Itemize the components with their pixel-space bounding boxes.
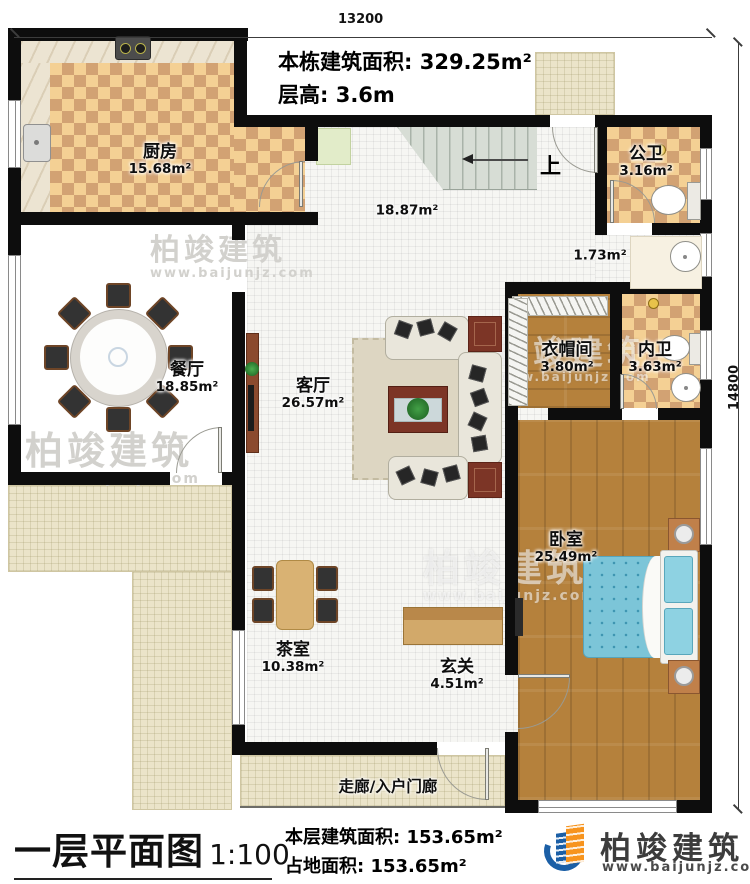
title-underline [14, 878, 272, 884]
wall [234, 115, 550, 127]
kitchen-sink [23, 124, 51, 162]
kitchen-floor [50, 63, 234, 212]
ceiling-lamp [648, 298, 659, 309]
burner [120, 43, 131, 54]
tea-chair [252, 598, 274, 623]
wall [595, 223, 607, 235]
bath-sink [671, 373, 701, 402]
wall [222, 472, 245, 485]
bed-pillow [664, 556, 693, 603]
top-dimension-line [14, 37, 712, 38]
stairs-up-label: 上 [540, 150, 561, 180]
entry-door-leaf [485, 748, 489, 800]
tea-room-slider [232, 630, 245, 725]
wall [232, 485, 245, 630]
shoe-cabinet [403, 607, 503, 645]
tea-chair [252, 566, 274, 591]
inner-bath-label: 内卫3.63m² [628, 341, 681, 375]
public-bath-door-leaf [610, 180, 614, 223]
right-dimension-line [738, 42, 739, 810]
toilet-tank [687, 182, 701, 220]
dining-chair [44, 345, 69, 370]
back-porch-floor [535, 52, 615, 115]
logo-building-orange [566, 824, 584, 865]
wall [505, 420, 518, 675]
wall [8, 472, 170, 485]
foyer-label: 玄关4.51m² [430, 658, 483, 692]
kitchen-window [8, 100, 21, 168]
land-area-text: 占地面积: 153.65m² [285, 852, 467, 878]
stair-direction-line [470, 159, 528, 161]
plan-title: 一层平面图 [14, 830, 204, 873]
plan-scale: 1:100 [209, 838, 290, 871]
kitchen-label: 厨房15.68m² [129, 143, 192, 177]
bed-pillow [664, 608, 693, 655]
toilet-bowl [651, 185, 686, 215]
nightstand [668, 660, 700, 694]
tea-table [276, 560, 314, 630]
plant [245, 362, 259, 376]
porch-edge-line [240, 806, 508, 808]
inner-bath-door-leaf [620, 374, 624, 409]
plan-title-block: 一层平面图 1:100 [14, 821, 290, 884]
tea-room-label: 茶室10.38m² [262, 641, 325, 675]
dining-window [8, 255, 21, 425]
stair-arrow-head [462, 154, 473, 164]
back-door-leaf [594, 127, 598, 173]
tea-chair [316, 598, 338, 623]
corridor-label: 走廊/入户门廊 [339, 778, 438, 795]
terrace-upper [8, 485, 232, 572]
logo-building-blue [556, 832, 566, 863]
floor-plan-sheet: 上 柏竣建筑 www.baijunjz.com 柏竣建筑 www.baijunj… [0, 0, 750, 884]
cloakroom-label: 衣帽间3.80m² [540, 341, 593, 375]
bedroom-door-leaf [518, 674, 570, 678]
stove [115, 36, 151, 60]
terrace-lower [132, 571, 232, 810]
tea-chair [316, 566, 338, 591]
tv [248, 385, 254, 431]
wash-area-label: 1.73m² [573, 248, 626, 263]
living-label: 客厅26.57m² [282, 377, 345, 411]
bedroom-tv [515, 598, 523, 636]
brand-website: www.baijunjz.com [602, 860, 750, 875]
public-bath-label: 公卫3.16m² [619, 145, 672, 179]
floor-height-text: 层高: 3.6m [278, 79, 395, 109]
plant [407, 398, 429, 420]
dining-door-leaf [218, 427, 222, 473]
inner-bath-window [700, 330, 712, 380]
dining-chair [106, 283, 131, 308]
lazy-susan [108, 347, 128, 367]
right-dimension-label: 14800 [727, 365, 742, 410]
brand-logo-icon [544, 821, 592, 877]
faucet [34, 140, 39, 145]
wall [232, 292, 245, 485]
side-table [468, 316, 502, 352]
dining-chair [106, 407, 131, 432]
wall [305, 127, 318, 161]
top-dimension-label: 13200 [338, 12, 383, 27]
wall [232, 742, 437, 755]
dining-door-arc [176, 427, 222, 473]
building-area-text: 本栋建筑面积: 329.25m² [278, 46, 532, 76]
wall [234, 28, 247, 127]
bedroom-label: 卧室25.49m² [535, 531, 598, 565]
bedroom-bottom-window [538, 800, 677, 813]
footer: 一层平面图 1:100 本层建筑面积: 153.65m² 占地面积: 153.6… [0, 815, 750, 884]
burner [135, 43, 146, 54]
nightstand [668, 518, 700, 552]
cloakroom-rack-left [508, 298, 528, 406]
wall [598, 115, 712, 127]
kitchen-door-leaf [299, 161, 303, 207]
sofa-pillow [471, 435, 488, 452]
dining-label: 餐厅18.85m² [156, 361, 219, 395]
wall [658, 408, 712, 420]
wall [8, 212, 318, 225]
wash-basin [670, 241, 701, 272]
toilet-tank [689, 333, 701, 365]
bedroom-side-window [700, 448, 712, 545]
side-table [468, 462, 502, 498]
wall [548, 408, 622, 420]
public-bath-window [700, 148, 712, 200]
wall [505, 408, 518, 420]
hallway-area-label: 18.87m² [376, 203, 439, 218]
wall [232, 225, 245, 240]
kitchen-door-mat [316, 128, 351, 165]
floor-area-text: 本层建筑面积: 153.65m² [285, 823, 503, 849]
